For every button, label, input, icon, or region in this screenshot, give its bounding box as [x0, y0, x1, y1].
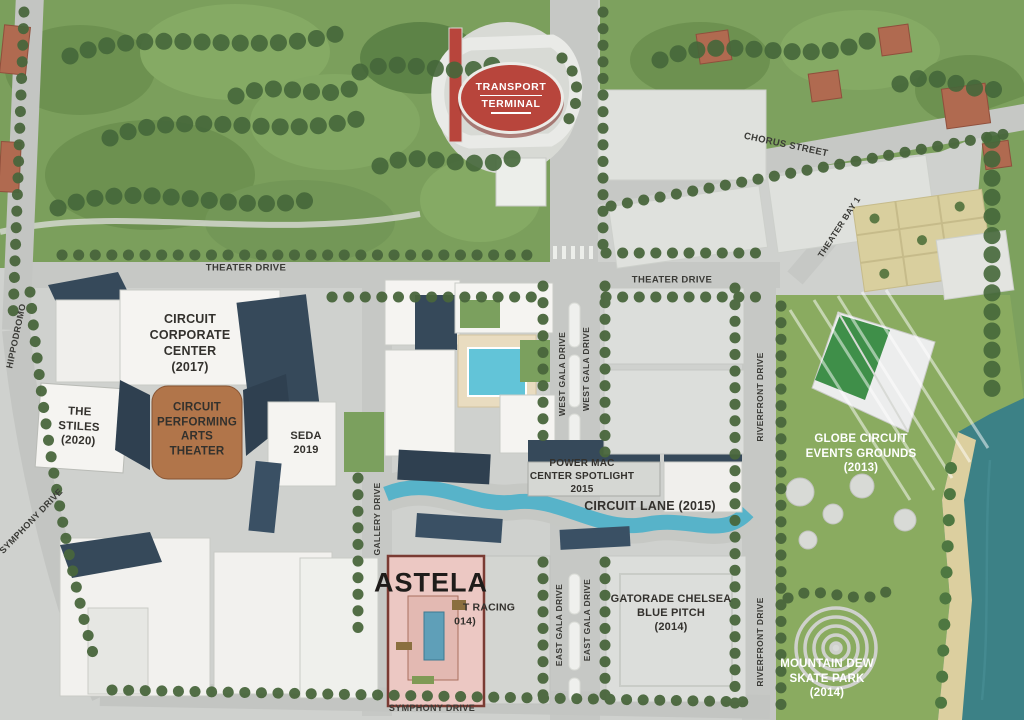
transport-terminal-label-line1: TRANSPORT [476, 81, 547, 93]
street-label-gallery-drive: GALLERY DRIVE [372, 482, 382, 555]
street-label-riverfront-1: RIVERFRONT DRIVE [755, 352, 765, 441]
label-power-mac-spotlight: POWER MAC CENTER SPOTLIGHT 2015 [530, 458, 634, 496]
site-map: TRANSPORT TERMINAL CHORUS STREET THEATER… [0, 0, 1024, 720]
street-label-symphony-south: SYMPHONY DRIVE [389, 703, 475, 713]
slate-roof [397, 450, 490, 485]
terminal-side-building [496, 158, 546, 206]
label-kart-racing-fragment-2: 014) [454, 615, 476, 628]
street-label-riverfront-2: RIVERFRONT DRIVE [755, 597, 765, 686]
street-label-east-gala-2: EAST GALA DRIVE [582, 579, 592, 661]
label-astela: ASTELA [374, 566, 488, 601]
street-label-theater-drive-west: THEATER DRIVE [206, 263, 286, 274]
street-label-west-gala-2: WEST GALA DRIVE [581, 327, 591, 411]
terminal-underline [491, 112, 531, 114]
label-the-stiles: THE STILES (2020) [57, 404, 101, 450]
label-performing-arts-theater: CIRCUIT PERFORMING ARTS THEATER [157, 401, 237, 460]
label-gatorade-pitch: GATORADE CHELSEA BLUE PITCH (2014) [611, 592, 732, 634]
street-label-theater-drive-east: THEATER DRIVE [632, 275, 712, 286]
label-circuit-corporate-center: CIRCUIT CORPORATE CENTER (2017) [150, 311, 231, 375]
terminal-divider [480, 95, 542, 97]
label-kart-racing-fragment-1: T RACING [463, 601, 515, 614]
label-circuit-lane: CIRCUIT LANE (2015) [584, 498, 716, 514]
amenity-pool [468, 348, 526, 396]
label-globe-events-grounds: GLOBE CIRCUIT EVENTS GROUNDS (2013) [806, 432, 917, 476]
label-seda: SEDA 2019 [290, 429, 321, 457]
label-mountain-dew-skate-park: MOUNTAIN DEW SKATE PARK (2014) [780, 657, 874, 701]
street-label-east-gala-1: EAST GALA DRIVE [554, 584, 564, 666]
slate-roof [415, 295, 457, 350]
transport-terminal-sign: TRANSPORT TERMINAL [458, 62, 564, 134]
transport-terminal-label-line2: TERMINAL [481, 98, 540, 110]
street-label-west-gala-1: WEST GALA DRIVE [557, 332, 567, 416]
